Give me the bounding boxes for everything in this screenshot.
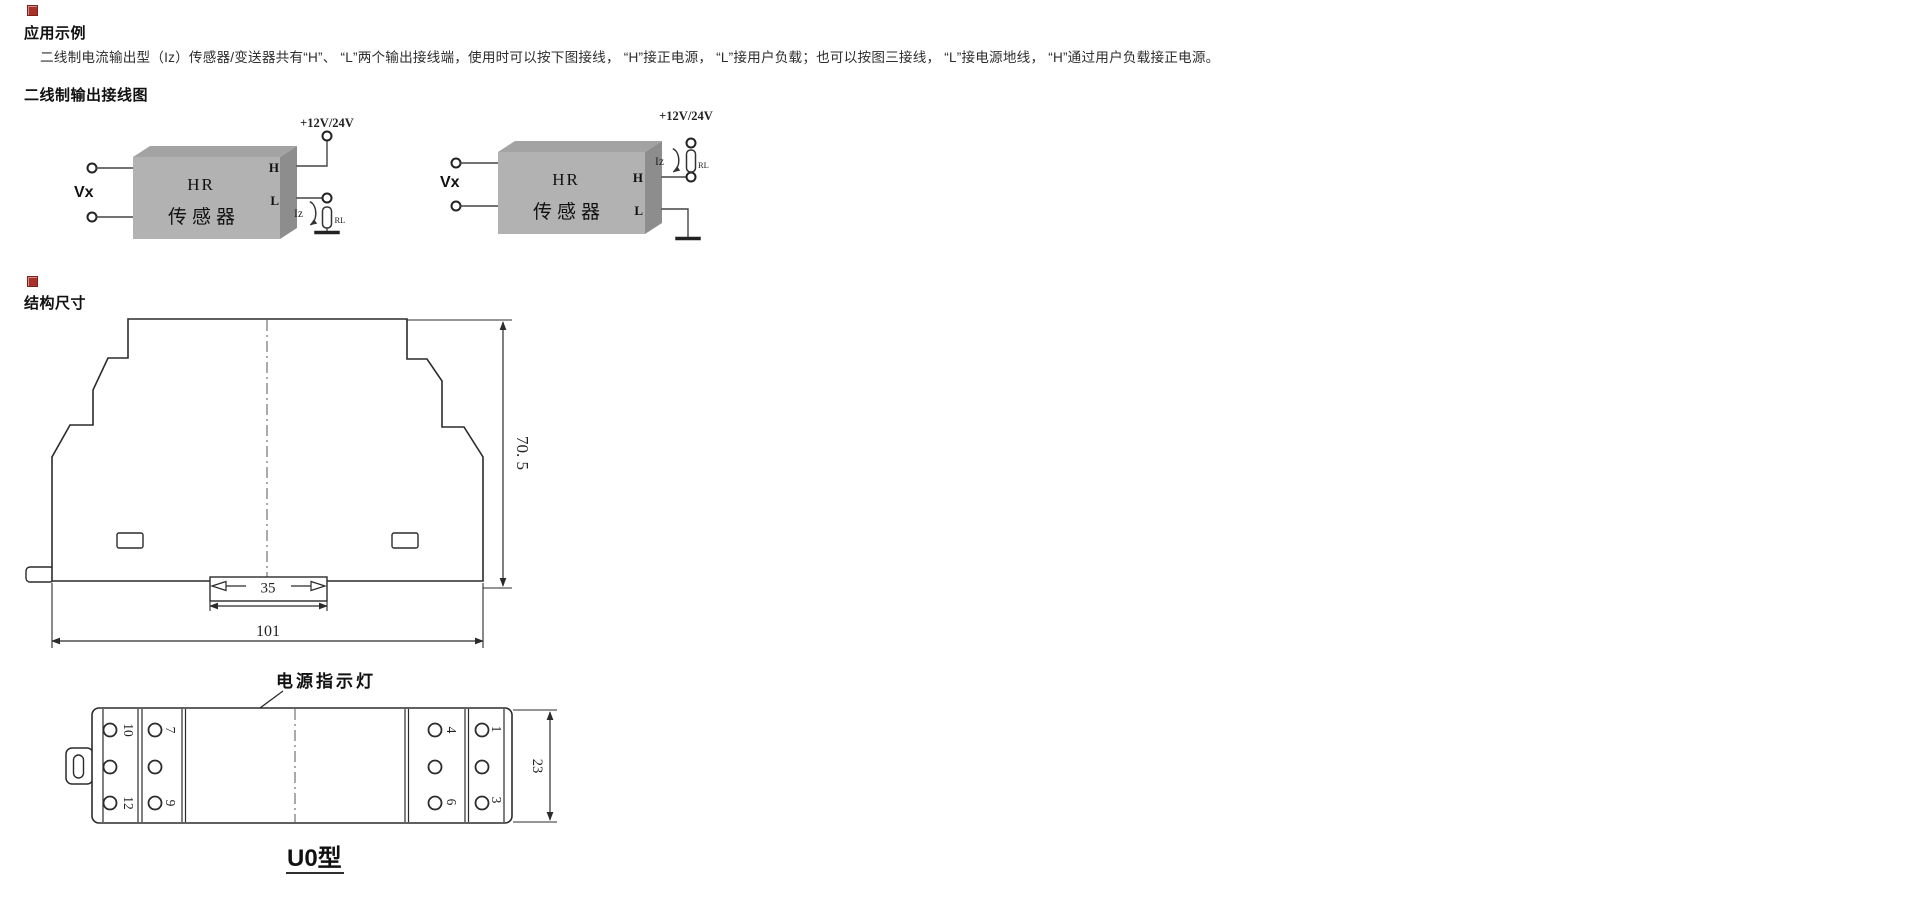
width-dim: 101 bbox=[256, 623, 280, 640]
output-current-label: Iz bbox=[294, 208, 303, 220]
terminal-l-label: L bbox=[270, 193, 279, 208]
current-direction-arrow-icon bbox=[311, 202, 316, 225]
terminal-l-label: L bbox=[634, 203, 643, 218]
bottom-view-drawing: 电源指示灯 bbox=[66, 671, 557, 873]
terminal-h-label: H bbox=[633, 170, 643, 185]
terminal-number: 9 bbox=[163, 800, 178, 807]
rail-width-dim: 35 bbox=[261, 581, 276, 597]
supply-terminal-icon bbox=[323, 132, 332, 141]
input-terminal-icon bbox=[88, 164, 97, 173]
output-current-label: Iz bbox=[655, 156, 664, 168]
input-terminal-icon bbox=[452, 202, 461, 211]
terminal-h-label: H bbox=[269, 160, 279, 175]
din-clip-slot bbox=[74, 755, 84, 778]
datasheet-page: 应用示例 二线制电流输出型（Iz）传感器/变送器共有“H”、 “L”两个输出接线… bbox=[0, 0, 1920, 908]
sensor-box-title: HR bbox=[187, 175, 215, 194]
wiring-diagram-2: Vx HR 传感器 H L +12V/24V RL Iz bbox=[440, 109, 713, 239]
structure-drawing: 35 70. 5 101 bbox=[26, 319, 532, 648]
load-resistor bbox=[687, 150, 696, 172]
wiring-diagram-1: Vx HR 传感器 H L +12V/24V RL Iz bbox=[74, 116, 354, 239]
input-terminal-icon bbox=[88, 213, 97, 222]
sensor-box-top bbox=[133, 146, 297, 157]
input-voltage-label: Vx bbox=[440, 174, 460, 191]
sensor-box-subtitle: 传感器 bbox=[533, 201, 605, 223]
input-terminal-icon bbox=[452, 159, 461, 168]
sensor-box-top bbox=[498, 141, 662, 152]
supply-voltage-label: +12V/24V bbox=[659, 109, 713, 123]
load-terminal-icon bbox=[687, 173, 696, 182]
terminal-number: 1 bbox=[489, 726, 504, 733]
terminal-number: 7 bbox=[163, 727, 178, 734]
load-resistor-label: RL bbox=[698, 160, 709, 170]
led-callout-label: 电源指示灯 bbox=[276, 671, 376, 691]
load-resistor-label: RL bbox=[335, 215, 346, 225]
supply-terminal-icon bbox=[687, 139, 696, 148]
height-dim: 70. 5 bbox=[513, 436, 532, 470]
depth-dim: 23 bbox=[529, 759, 545, 774]
load-resistor bbox=[323, 207, 332, 228]
sensor-box-title: HR bbox=[552, 170, 580, 189]
input-voltage-label: Vx bbox=[74, 184, 94, 201]
model-type-label: U0型 bbox=[287, 845, 342, 872]
terminal-number: 6 bbox=[444, 799, 459, 806]
supply-voltage-label: +12V/24V bbox=[300, 116, 354, 130]
terminal-number: 10 bbox=[121, 723, 136, 737]
terminal-number: 3 bbox=[489, 797, 504, 804]
sensor-box-subtitle: 传感器 bbox=[168, 206, 240, 228]
current-direction-arrow-icon bbox=[674, 149, 679, 172]
sensor-box-side bbox=[280, 146, 297, 239]
terminal-number: 12 bbox=[121, 796, 136, 810]
terminal-number: 4 bbox=[444, 727, 459, 734]
load-terminal-icon bbox=[323, 194, 332, 203]
drawings-canvas: Vx HR 传感器 H L +12V/24V RL Iz bbox=[0, 0, 1920, 908]
latch-window bbox=[392, 533, 418, 548]
sensor-box-side bbox=[645, 141, 662, 234]
din-clip-tab bbox=[26, 567, 54, 582]
latch-window bbox=[117, 533, 143, 548]
